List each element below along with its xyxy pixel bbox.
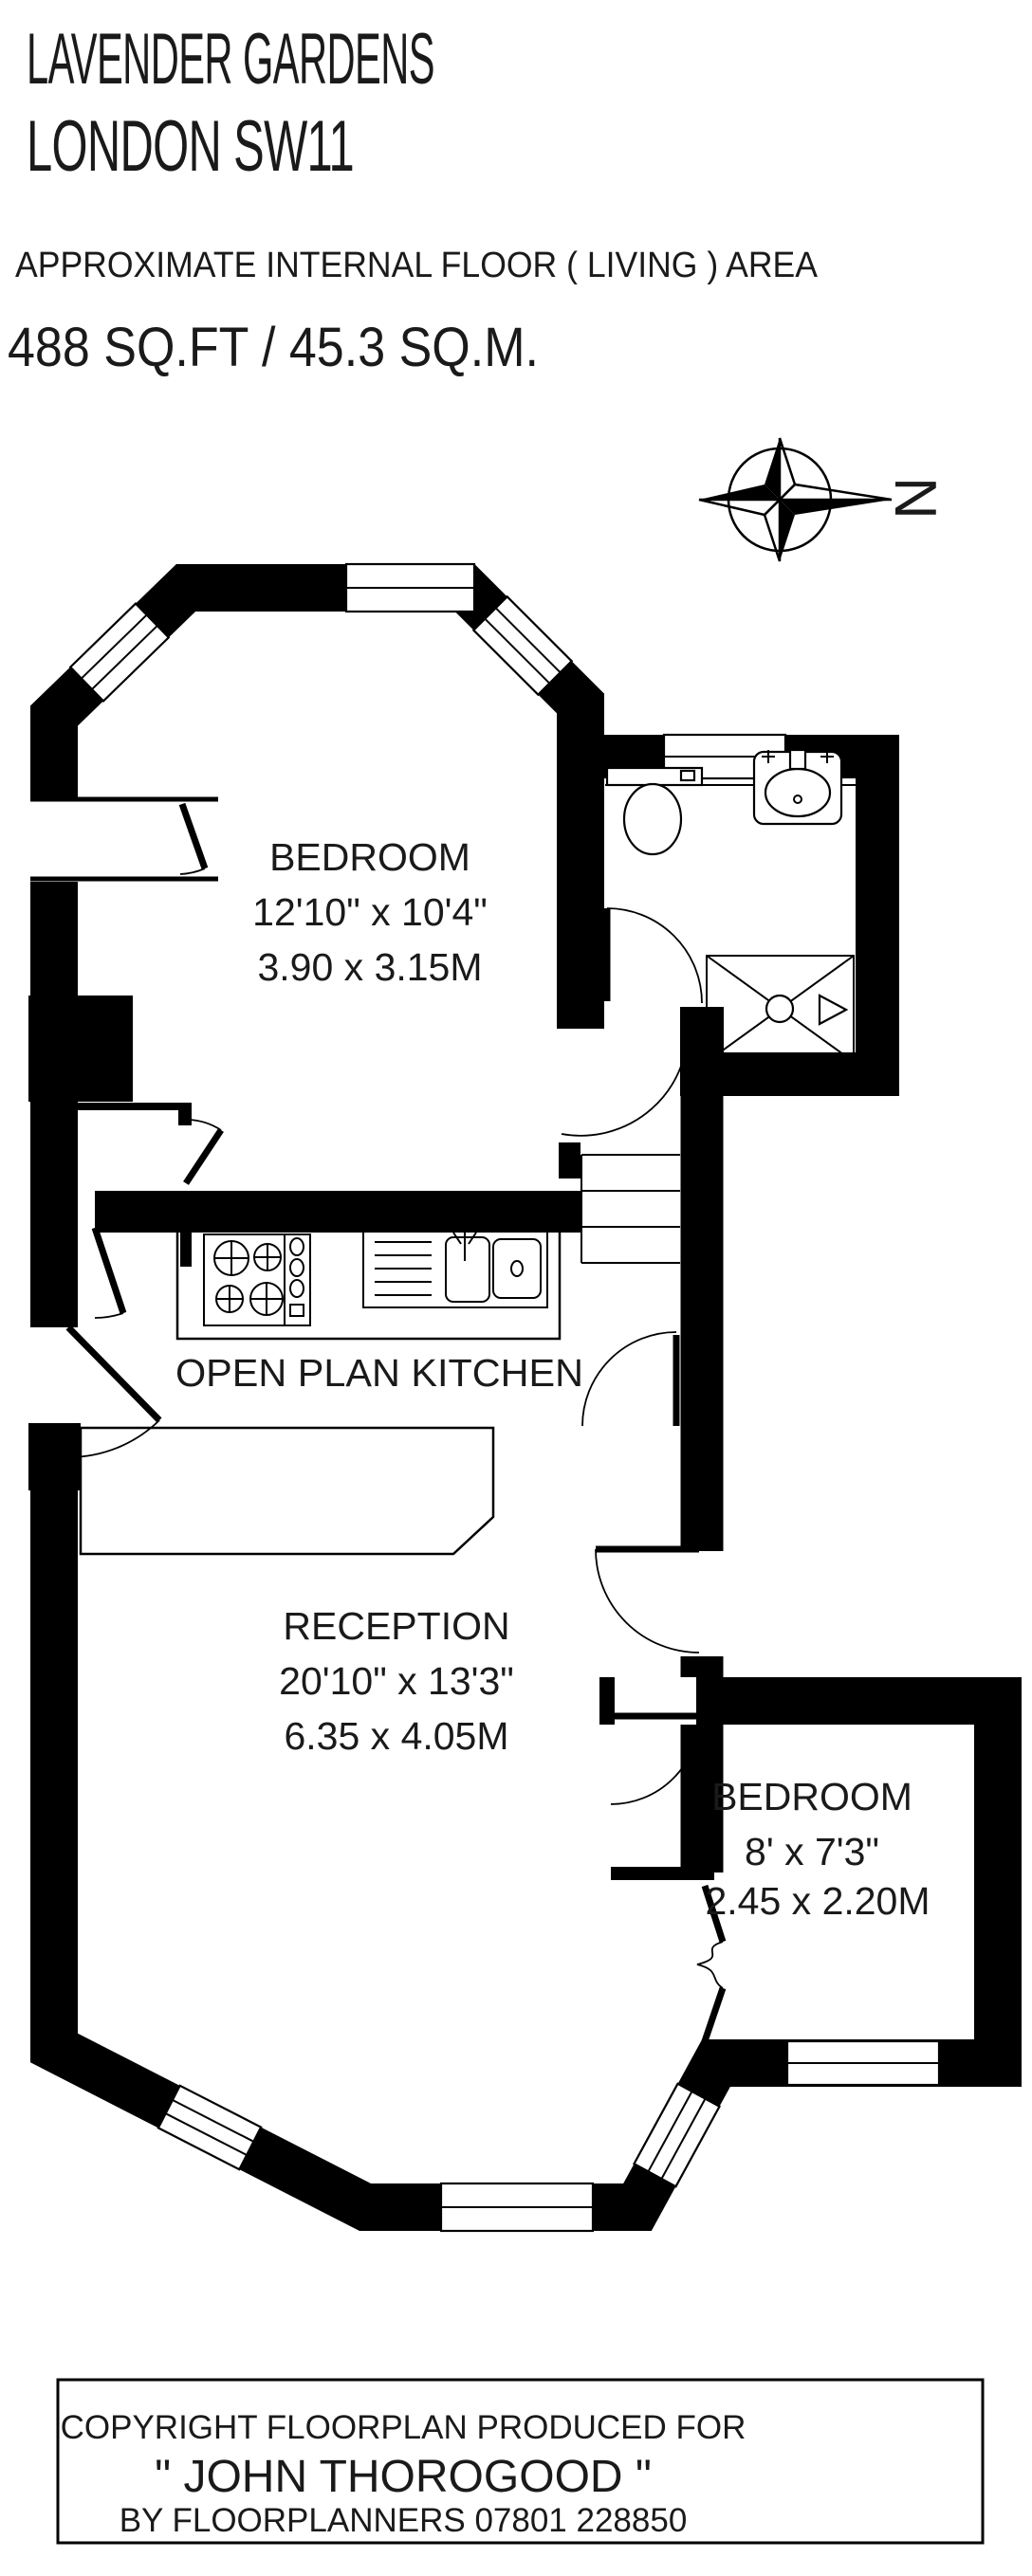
wall-jamb xyxy=(559,1142,580,1178)
hob-knob xyxy=(290,1238,304,1255)
toilet-bowl xyxy=(624,784,681,854)
hob-knob xyxy=(290,1280,304,1297)
door-leaf xyxy=(182,804,205,868)
hob-knob xyxy=(290,1259,304,1276)
floorplan-canvas: LAVENDER GARDENS LONDON SW11 APPROXIMATE… xyxy=(0,0,1032,2576)
wall-break-symbol xyxy=(705,1988,723,2041)
door-swing-arc xyxy=(607,908,702,1003)
compass-point xyxy=(780,484,892,500)
room-dims-bedroom1-imp: 12'10" x 10'4" xyxy=(252,890,488,934)
room-dims-reception-met: 6.35 x 4.05M xyxy=(284,1714,508,1758)
shower-head xyxy=(820,996,846,1024)
shower-drain xyxy=(766,996,793,1022)
compass-point xyxy=(780,500,892,515)
footer: COPYRIGHT FLOORPLAN PRODUCED FOR " JOHN … xyxy=(58,2380,983,2543)
door-swing-arc xyxy=(562,1022,688,1136)
window-icon xyxy=(635,2084,720,2186)
room-dims-bedroom1-met: 3.90 x 3.15M xyxy=(257,945,482,989)
page-subtitle: APPROXIMATE INTERNAL FLOOR ( LIVING ) AR… xyxy=(15,246,819,285)
walls xyxy=(28,588,998,2207)
breakfast-bar xyxy=(81,1428,493,1554)
hob-knob xyxy=(290,1305,304,1316)
door-leaf xyxy=(68,1327,159,1420)
door-swing-arc xyxy=(95,1313,123,1318)
room-label-bedroom2: BEDROOM xyxy=(711,1775,912,1818)
footer-line1: COPYRIGHT FLOORPLAN PRODUCED FOR xyxy=(61,2409,746,2446)
door-swing-arc xyxy=(596,1549,699,1653)
compass-rose: N xyxy=(699,438,948,561)
sink-bowl xyxy=(493,1239,541,1298)
chimney-breast xyxy=(28,996,133,1102)
floorplan-page: LAVENDER GARDENS LONDON SW11 APPROXIMATE… xyxy=(0,0,1032,2576)
door-swing-arc xyxy=(180,868,205,874)
toilet-flush xyxy=(681,771,694,780)
stairs-icon xyxy=(581,1155,680,1263)
room-label-bedroom1: BEDROOM xyxy=(269,835,470,879)
room-dims-bedroom2-met: 2.45 x 2.20M xyxy=(705,1879,930,1923)
footer-line3: BY FLOORPLANNERS 07801 228850 xyxy=(120,2502,688,2539)
room-dims-reception-imp: 20'10" x 13'3" xyxy=(279,1659,514,1703)
header: LAVENDER GARDENS LONDON SW11 APPROXIMATE… xyxy=(8,19,819,378)
door-leaf xyxy=(186,1130,221,1183)
page-title-line1: LAVENDER GARDENS xyxy=(27,19,434,100)
basin-bowl xyxy=(765,769,830,816)
page-title-line2: LONDON SW11 xyxy=(27,106,354,187)
wall-jamb xyxy=(180,1223,192,1267)
room-labels: BEDROOM 12'10" x 10'4" 3.90 x 3.15M OPEN… xyxy=(175,835,931,1923)
compass-point xyxy=(765,500,780,561)
wall-stub xyxy=(611,1867,714,1880)
compass-north-label: N xyxy=(882,477,948,520)
alcove-opening xyxy=(28,802,80,876)
door-swing-arc xyxy=(188,1120,221,1130)
sink-drain xyxy=(511,1261,523,1276)
room-label-reception: RECEPTION xyxy=(283,1604,509,1648)
door-swing-arc xyxy=(68,1420,159,1457)
wall-break-squiggle xyxy=(697,1942,723,1988)
floor-area-text: 488 SQ.FT / 45.3 SQ.M. xyxy=(8,317,539,378)
bathroom-fixtures xyxy=(605,750,856,1062)
basin-spout xyxy=(790,750,805,769)
room-label-kitchen: OPEN PLAN KITCHEN xyxy=(175,1351,583,1395)
counter-outline xyxy=(177,1233,560,1339)
room-dims-bedroom2-imp: 8' x 7'3" xyxy=(745,1830,879,1873)
footer-line2: " JOHN THOROGOOD " xyxy=(155,2452,652,2502)
sink-bowl xyxy=(446,1237,489,1302)
window-icon xyxy=(158,2086,261,2169)
door-swing-arc xyxy=(582,1332,676,1426)
door-leaf xyxy=(95,1228,123,1313)
